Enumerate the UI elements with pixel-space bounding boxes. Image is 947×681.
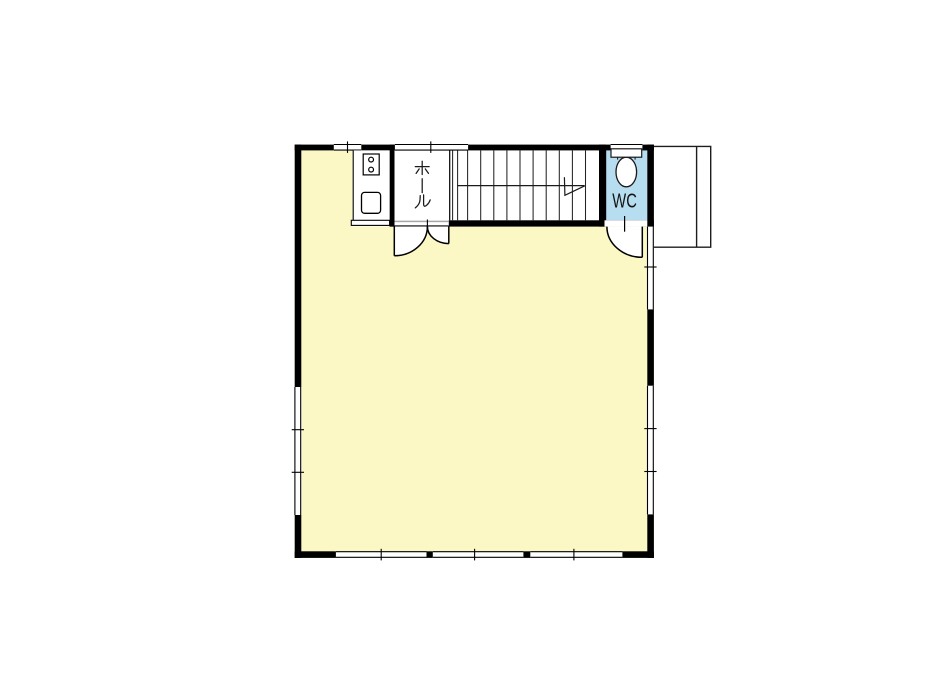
svg-text:WC: WC bbox=[612, 189, 637, 212]
